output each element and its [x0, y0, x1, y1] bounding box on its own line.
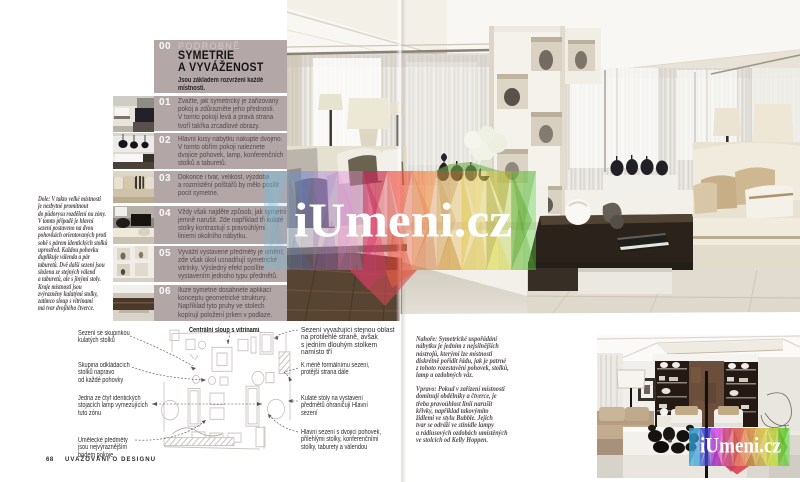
svg-text:iUmeni.cz: iUmeni.cz: [294, 193, 512, 248]
svg-text:iUmeni.cz: iUmeni.cz: [700, 433, 781, 458]
